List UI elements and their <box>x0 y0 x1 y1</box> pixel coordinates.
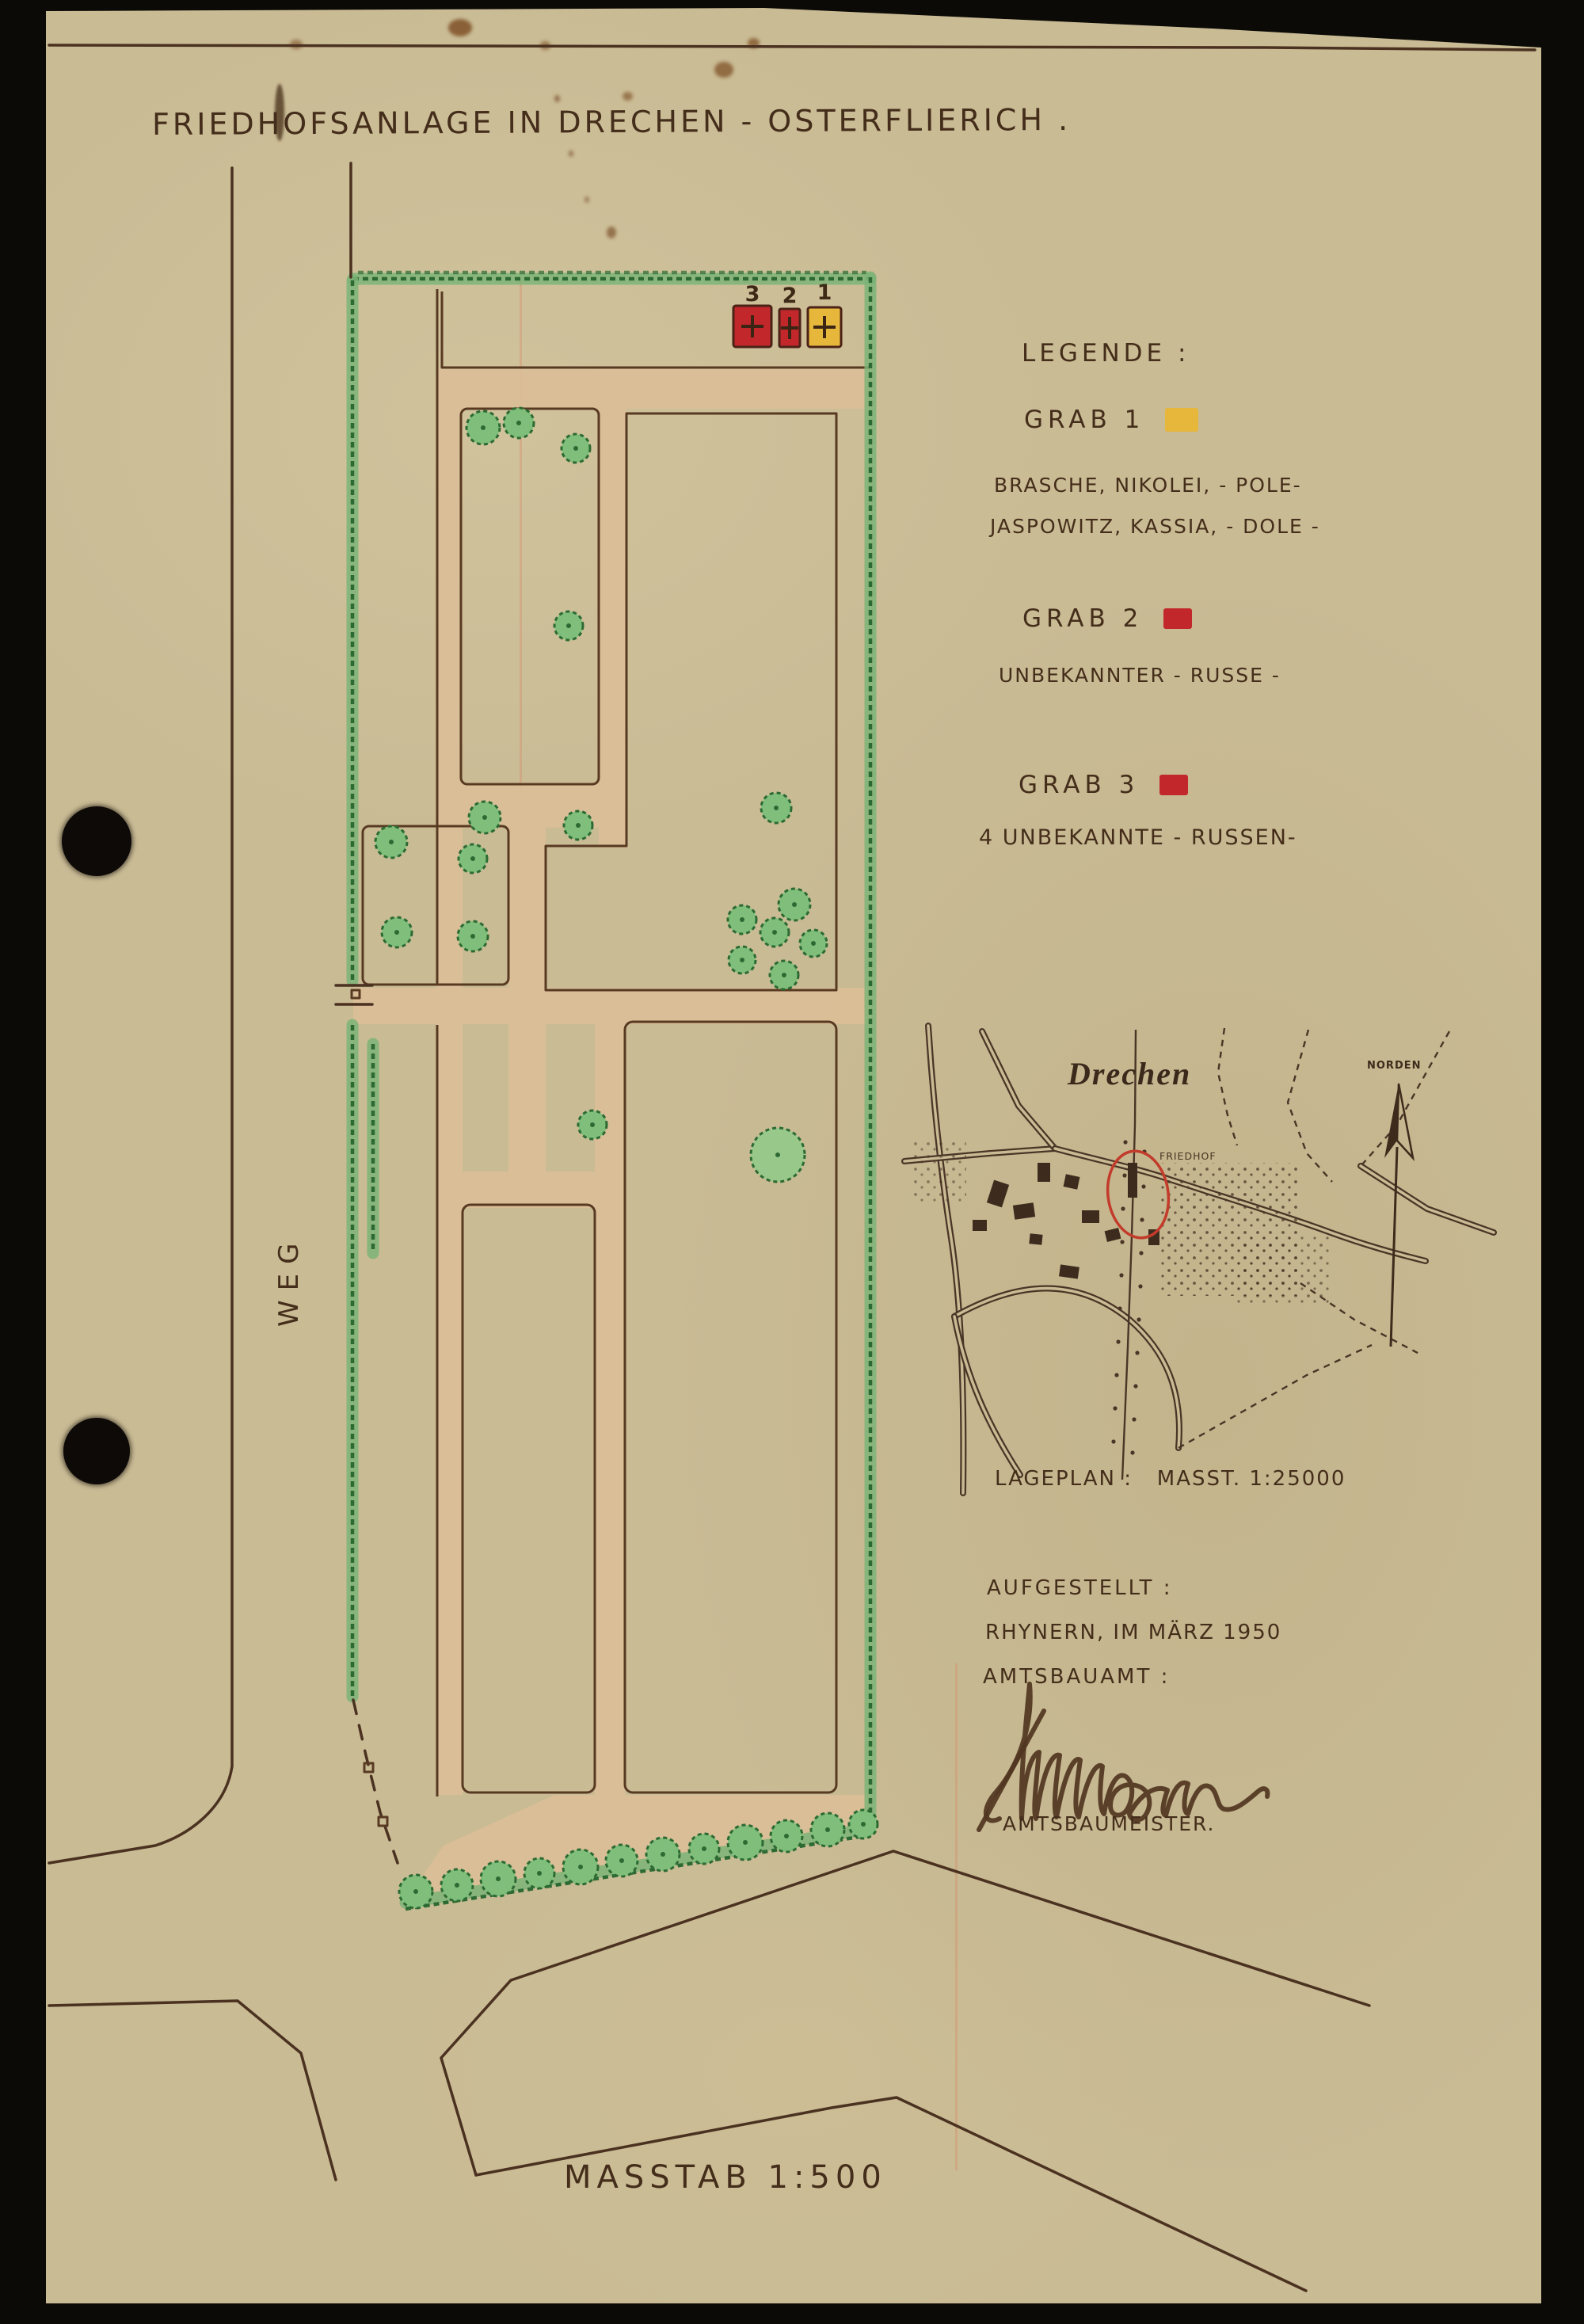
location-map-caption: LAGEPLAN : MASST. 1:25000 <box>995 1467 1346 1491</box>
legend-entry-grab1: GRAB 1 <box>1024 406 1198 434</box>
stain <box>748 38 760 48</box>
fold-crease <box>955 1663 958 2170</box>
grab2-color-swatch <box>1163 608 1192 629</box>
attribution-heading: AUFGESTELLT : <box>987 1576 1172 1600</box>
legend-entry-grab2: GRAB 2 <box>1022 604 1192 633</box>
cemetery-label: FRIEDHOF <box>1159 1150 1217 1162</box>
attribution-place-date: RHYNERN, IM MÄRZ 1950 <box>985 1621 1281 1644</box>
grab1-color-swatch <box>1165 408 1198 432</box>
north-label: NORDEN <box>1367 1060 1422 1072</box>
stain <box>623 92 633 101</box>
stain <box>714 62 733 78</box>
road-label-weg: WEG <box>273 1248 305 1327</box>
stain <box>290 40 303 49</box>
punch-hole-top <box>62 806 131 876</box>
legend-entry-grab3: GRAB 3 <box>1019 771 1188 799</box>
grab3-name-line: 4 UNBEKANNTE - RUSSEN- <box>979 825 1297 850</box>
attribution-office: AMTSBAUAMT : <box>983 1665 1170 1689</box>
page-title: FRIEDHOFSANLAGE IN DRECHEN - OSTERFLIERI… <box>152 102 1071 142</box>
grab1-label: GRAB 1 <box>1024 406 1144 434</box>
speck <box>584 196 589 203</box>
stain <box>540 41 550 50</box>
scanned-cemetery-plan-page: 3 2 1 <box>0 0 1584 2324</box>
legend-heading: LEGENDE : <box>1022 339 1190 368</box>
speck <box>569 150 573 157</box>
stain <box>607 227 616 238</box>
grab2-name-line: UNBEKANNTER - RUSSE - <box>999 664 1281 687</box>
grab3-color-swatch <box>1159 775 1188 795</box>
paper-sheet <box>46 6 1541 2303</box>
attribution-role: AMTSBAUMEISTER. <box>1003 1812 1215 1835</box>
grab1-name-line2: JASPOWITZ, KASSIA, - DOLE - <box>990 515 1320 538</box>
grab1-name-line1: BRASCHE, NIKOLEI, - POLE- <box>994 474 1302 497</box>
fold-crease <box>520 279 522 794</box>
punch-hole-bottom <box>63 1418 130 1484</box>
stain <box>448 19 472 36</box>
town-label: Drechen <box>1068 1055 1191 1092</box>
grab3-label: GRAB 3 <box>1019 771 1139 799</box>
grab2-label: GRAB 2 <box>1022 604 1143 633</box>
scale-label: MASSTAB 1:500 <box>564 2159 887 2196</box>
speck <box>554 95 560 102</box>
